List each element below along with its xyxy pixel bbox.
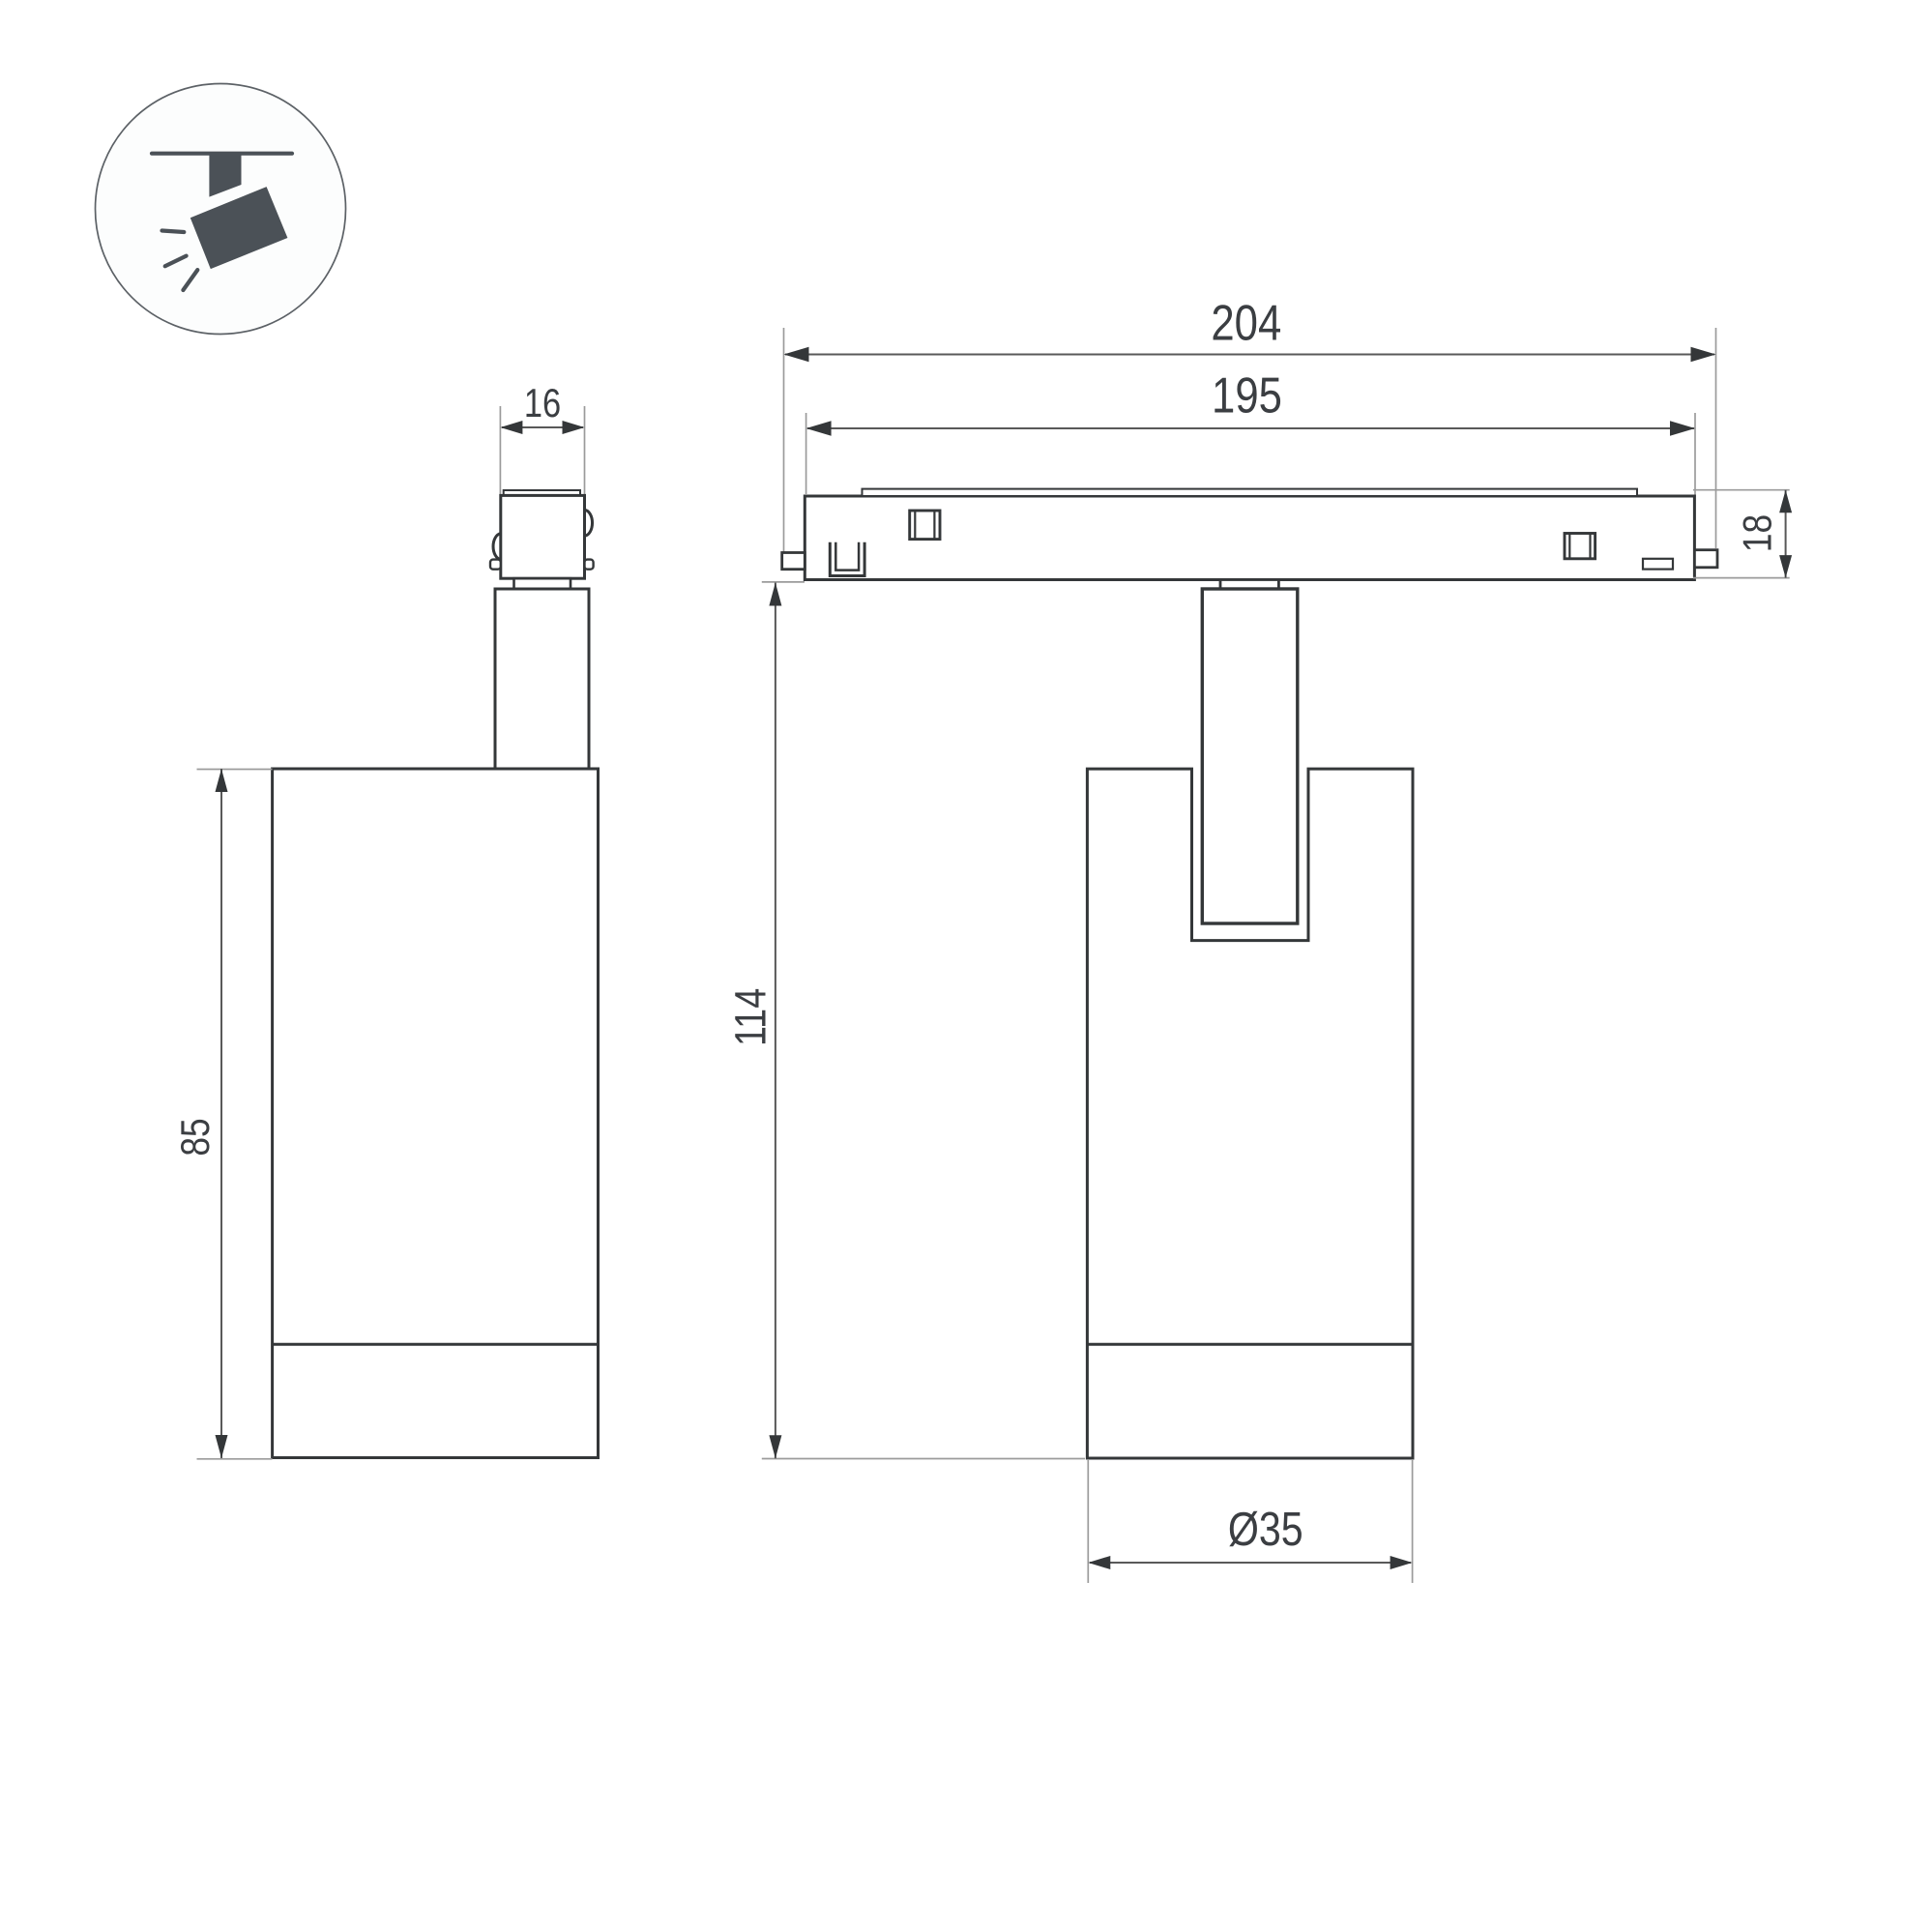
svg-text:114: 114 [725,988,775,1046]
svg-text:195: 195 [1212,368,1282,424]
svg-text:85: 85 [173,1118,219,1156]
svg-text:Ø35: Ø35 [1228,1502,1303,1555]
svg-text:16: 16 [524,381,561,426]
svg-text:204: 204 [1211,296,1281,351]
svg-text:18: 18 [1736,514,1781,552]
